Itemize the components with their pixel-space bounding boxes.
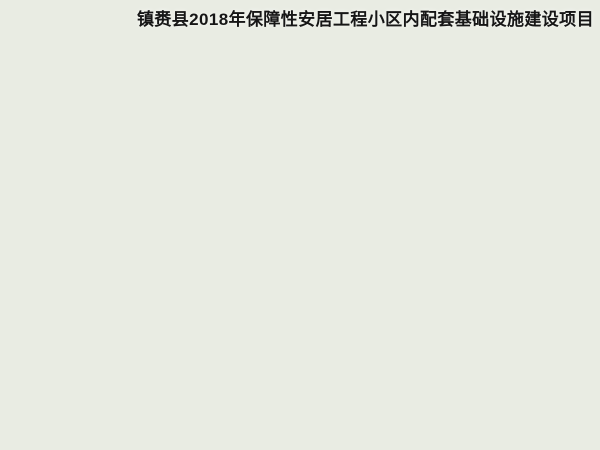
site-plan-rendering [0, 0, 600, 450]
project-title: 镇赉县2018年保障性安居工程小区内配套基础设施建设项目 [137, 5, 594, 30]
background [0, 0, 600, 450]
aerial-rendering: 镇赉县2018年保障性安居工程小区内配套基础设施建设项目 [0, 0, 600, 450]
